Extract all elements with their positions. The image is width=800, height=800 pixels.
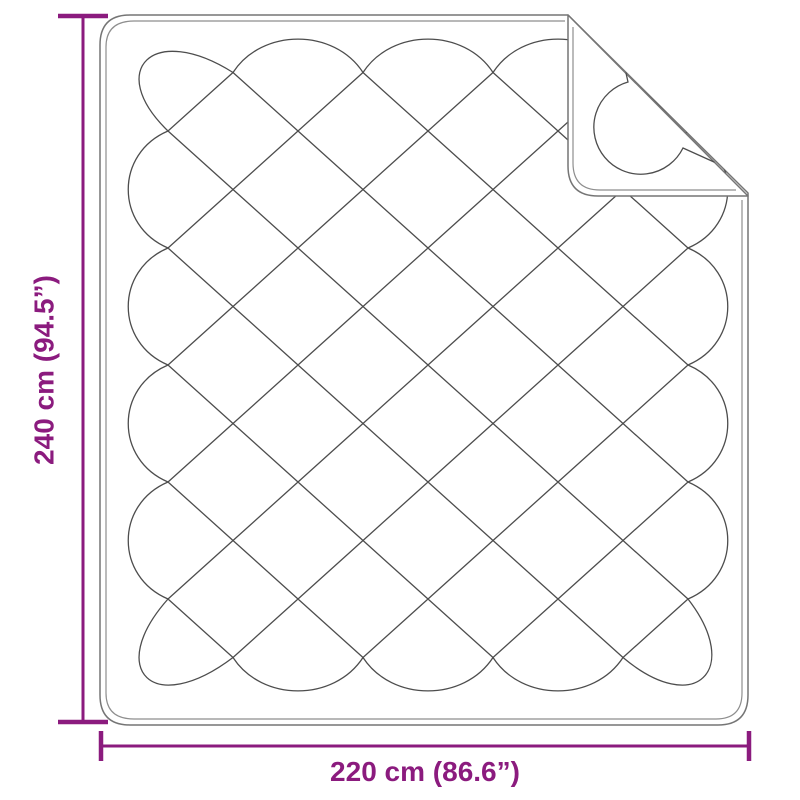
folded-corner — [568, 15, 748, 196]
folded-corner-flap — [568, 15, 748, 196]
blanket — [100, 15, 748, 725]
height-dimension-label: 240 cm (94.5”) — [28, 275, 59, 465]
width-dimension: 220 cm (86.6”) — [101, 731, 749, 787]
blanket-dimension-diagram: 240 cm (94.5”) 220 cm (86.6”) — [0, 0, 800, 800]
height-dimension: 240 cm (94.5”) — [28, 16, 108, 722]
width-dimension-label: 220 cm (86.6”) — [330, 756, 520, 787]
diagram-canvas: 240 cm (94.5”) 220 cm (86.6”) — [0, 0, 800, 800]
